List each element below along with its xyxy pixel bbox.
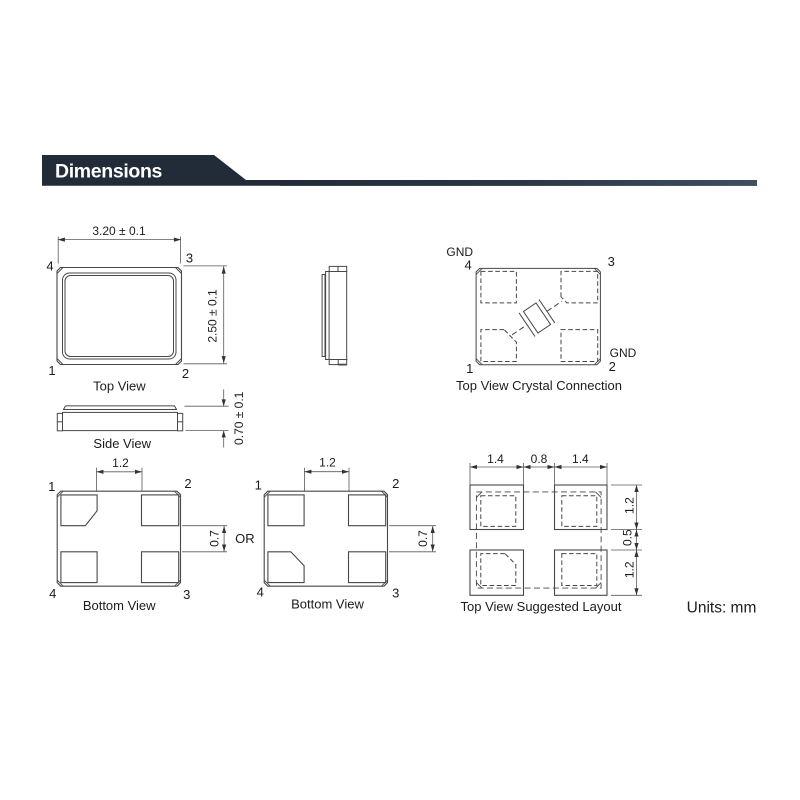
- svg-text:3: 3: [392, 585, 399, 600]
- svg-text:0.8: 0.8: [531, 452, 548, 466]
- svg-text:1.4: 1.4: [572, 452, 589, 466]
- svg-text:0.5: 0.5: [621, 529, 635, 546]
- svg-text:1: 1: [466, 361, 473, 376]
- svg-text:4: 4: [49, 586, 56, 601]
- svg-text:GND: GND: [610, 346, 637, 360]
- svg-text:3: 3: [186, 251, 193, 266]
- svg-text:Top View: Top View: [93, 379, 146, 394]
- svg-text:0.7: 0.7: [208, 530, 222, 547]
- svg-text:2: 2: [392, 476, 399, 491]
- svg-text:2: 2: [609, 359, 616, 374]
- svg-text:Bottom View: Bottom View: [83, 598, 156, 613]
- svg-text:2: 2: [184, 476, 191, 491]
- svg-text:Side View: Side View: [93, 436, 151, 451]
- svg-text:Top View Suggested Layout: Top View Suggested Layout: [461, 599, 622, 614]
- svg-text:Dimensions: Dimensions: [55, 161, 163, 183]
- svg-text:0.7: 0.7: [416, 530, 430, 547]
- svg-text:1.4: 1.4: [487, 452, 504, 466]
- svg-text:Top View Crystal Connection: Top View Crystal Connection: [456, 378, 622, 393]
- svg-text:OR: OR: [235, 531, 255, 546]
- svg-text:1: 1: [255, 478, 262, 493]
- svg-text:1.2: 1.2: [112, 456, 129, 470]
- svg-text:1.2: 1.2: [622, 561, 636, 578]
- svg-text:1: 1: [48, 479, 55, 494]
- svg-text:3: 3: [183, 587, 190, 602]
- svg-text:1: 1: [48, 363, 55, 378]
- svg-text:0.70 ± 0.1: 0.70 ± 0.1: [232, 391, 246, 445]
- svg-text:3: 3: [608, 254, 615, 269]
- svg-text:4: 4: [257, 584, 264, 599]
- svg-text:4: 4: [464, 258, 471, 273]
- svg-text:2: 2: [182, 366, 189, 381]
- svg-text:3.20 ± 0.1: 3.20 ± 0.1: [92, 224, 146, 238]
- svg-text:1.2: 1.2: [622, 497, 636, 514]
- svg-text:4: 4: [46, 259, 53, 274]
- svg-text:2.50 ± 0.1: 2.50 ± 0.1: [206, 289, 220, 343]
- svg-text:Units: mm: Units: mm: [687, 600, 757, 617]
- svg-text:1.2: 1.2: [319, 456, 336, 470]
- svg-text:Bottom View: Bottom View: [291, 597, 364, 612]
